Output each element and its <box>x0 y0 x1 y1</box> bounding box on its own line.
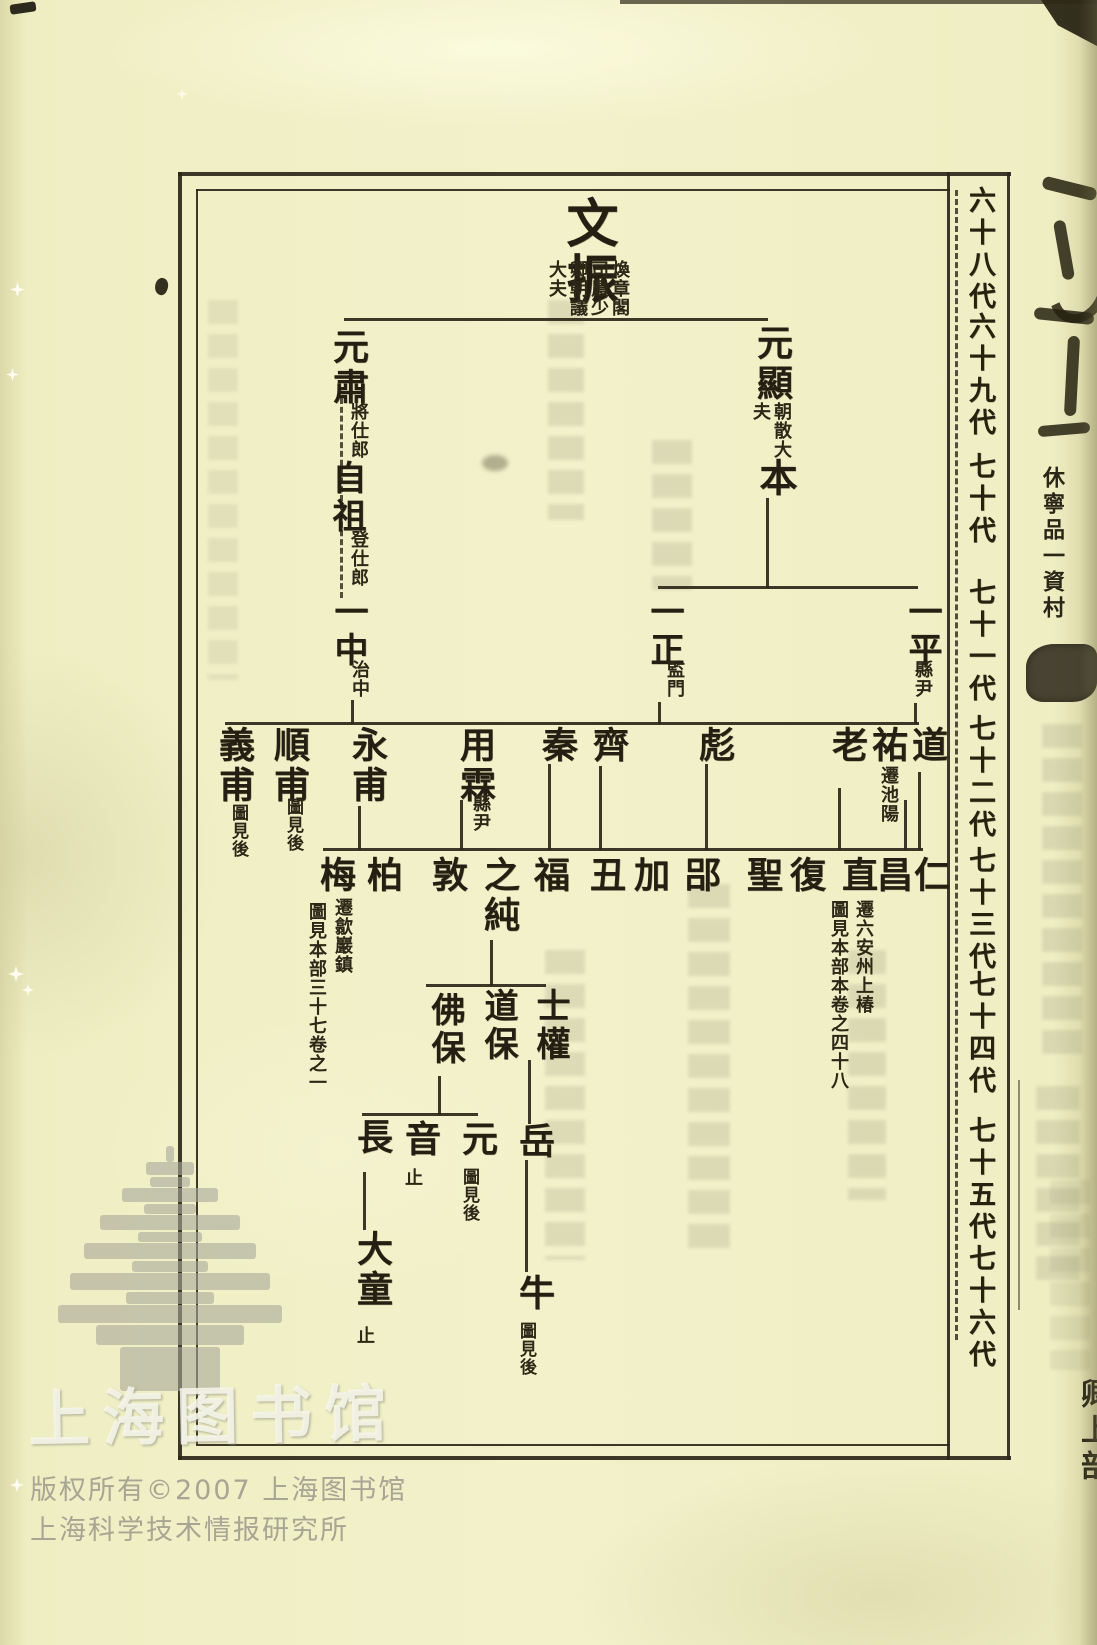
node-title-zizu: 登仕郎 <box>348 530 369 587</box>
generation-label: 七十代 <box>960 452 999 548</box>
punch-hole <box>8 966 24 982</box>
node-note-zhi: 遷六安州上椿 <box>853 900 874 1014</box>
node-name-yifu: 義甫 <box>208 726 260 806</box>
connector <box>351 700 354 724</box>
pagoda-tier <box>70 1273 270 1290</box>
node-title-yizhong: 治中 <box>349 660 370 698</box>
scanned-genealogy-page: 六十八代 六十九代 七十代 七十一代 七十二代 七十三代 七十四代 七十五代 七… <box>0 0 1097 1645</box>
node-name-yuan: 元 <box>451 1120 503 1160</box>
node-name-fu-blessing: 福 <box>523 856 575 896</box>
node-title-yonglin: 縣尹 <box>470 794 491 832</box>
bleed-through-ghost <box>548 300 584 520</box>
connector <box>438 1076 441 1115</box>
node-name-zhi: 直 <box>831 856 883 896</box>
node-name-daobao: 道保 <box>474 988 523 1064</box>
smudge <box>482 455 508 471</box>
node-name-yizheng: 一正 <box>640 594 689 670</box>
generation-label: 七十四代 <box>960 970 999 1098</box>
generation-label: 六十九代 <box>960 312 999 440</box>
node-name-ben: 本 <box>748 458 803 500</box>
connector <box>548 764 551 850</box>
node-name-mei: 梅 <box>309 856 361 896</box>
node-name-shiquan: 士權 <box>526 988 575 1064</box>
page-edge-shadow <box>1079 0 1097 1645</box>
generation-label: 七十三代 <box>960 846 999 974</box>
generation-label: 七十五代 <box>960 1116 999 1244</box>
node-note2-zhi: 圖見本部本卷之四十八 <box>828 900 849 1090</box>
pagoda-tier <box>100 1215 240 1230</box>
frame-top-inner <box>196 189 950 191</box>
punch-hole <box>22 984 34 996</box>
node-name-qi: 齊 <box>582 726 634 766</box>
node-name-datong: 大童 <box>346 1230 398 1310</box>
bleed-through-ghost <box>208 300 238 680</box>
frame-bottom-outer <box>178 1456 1011 1460</box>
connector <box>225 722 919 725</box>
connector <box>766 498 769 588</box>
generation-column-dashes <box>955 190 958 1340</box>
punch-hole <box>10 1478 24 1492</box>
node-note-yifu: 圖見後 <box>228 804 248 858</box>
frame-top-outer <box>178 172 1011 176</box>
pagoda-tier <box>126 1292 214 1304</box>
node-name-fobao: 佛保 <box>421 992 470 1068</box>
node-title-yiping: 縣尹 <box>912 660 933 698</box>
pagoda-tier <box>58 1305 282 1323</box>
connector <box>918 772 921 850</box>
library-script-watermark: 上海图书馆 <box>27 1363 399 1459</box>
connector <box>599 766 602 850</box>
bleed-through-ghost <box>1042 724 1082 1064</box>
node-name-dun: 敦 <box>421 856 473 896</box>
connector <box>363 1172 366 1230</box>
bleed-through-ghost <box>688 884 730 1254</box>
connector <box>426 984 546 987</box>
generation-label: 七十一代 <box>960 578 999 706</box>
connector <box>323 848 923 851</box>
node-note-mei: 遷歙巖鎮 <box>332 898 353 974</box>
edge-streak <box>620 0 1097 4</box>
generation-label: 七十六代 <box>960 1244 999 1372</box>
node-name-yuansu: 元肅 <box>322 328 374 408</box>
node-note-yuan: 圖見後 <box>459 1168 479 1222</box>
connector <box>344 318 768 321</box>
node-name-biao: 彪 <box>688 726 740 766</box>
connector <box>904 800 907 850</box>
node-name-niu: 牛 <box>508 1274 560 1314</box>
ink-speck <box>9 1 36 15</box>
node-note-datong: 止 <box>354 1326 375 1345</box>
connector <box>705 764 708 850</box>
pagoda-tier <box>84 1243 256 1259</box>
node-title-yizheng: 監門 <box>664 660 685 698</box>
frame-right-outer <box>1007 172 1010 1460</box>
connector <box>658 586 918 589</box>
spine-stroke <box>1064 336 1080 417</box>
margin-rule <box>1018 1080 1020 1310</box>
connector <box>838 788 841 850</box>
node-name-chou: 丑 <box>579 856 631 896</box>
node-name-yue: 岳 <box>508 1122 560 1162</box>
punch-hole <box>6 368 19 381</box>
connector <box>914 703 917 724</box>
node-note-yin: 止 <box>402 1168 423 1187</box>
pagoda-tier <box>150 1177 190 1187</box>
pagoda-tier <box>132 1261 208 1272</box>
connector <box>358 806 361 850</box>
connector <box>460 800 463 850</box>
node-title-yuansu: 將仕郎 <box>348 402 369 459</box>
node-note-shunfu: 圖見後 <box>283 798 303 852</box>
node-name-lyu: 郘 <box>674 856 726 896</box>
node-name-bai: 柏 <box>356 856 408 896</box>
node-name-yizhong: 一中 <box>324 594 373 670</box>
ink-speck <box>152 276 170 296</box>
pagoda-tier <box>146 1162 194 1175</box>
generation-label: 六十八代 <box>960 186 999 314</box>
connector <box>528 1060 531 1124</box>
node-name-yuanxian: 元顯 <box>746 324 798 404</box>
punch-hole <box>10 282 25 297</box>
institute-watermark: 上海科学技术情报研究所 <box>30 1508 349 1547</box>
node-name-sheng: 聖 <box>736 856 788 896</box>
pagoda-tier <box>122 1188 218 1202</box>
node-name-zizu: 自祖 <box>322 460 371 536</box>
node-name-yin: 音 <box>394 1120 446 1160</box>
node-note-you: 遷池陽 <box>878 766 899 823</box>
node-name-yongfu: 永甫 <box>341 726 393 806</box>
node-name-yiping: 一平 <box>898 594 947 670</box>
connector <box>362 1113 478 1116</box>
punch-hole <box>176 88 188 100</box>
copyright-watermark: 版权所有©2007 上海图书馆 <box>30 1468 407 1507</box>
pagoda-finial <box>166 1146 174 1162</box>
node-name-qin: 秦 <box>531 726 583 766</box>
node-name-shunfu: 順甫 <box>263 726 315 806</box>
node-name-zhichun: 之純 <box>473 856 525 936</box>
connector <box>658 702 661 724</box>
pagoda-tier <box>144 1204 196 1214</box>
margin-volume-title: 休寧品一資村 <box>1036 466 1068 622</box>
generation-label: 七十二代 <box>960 714 999 842</box>
connector <box>490 940 493 986</box>
pagoda-base <box>96 1325 244 1345</box>
connector <box>525 1160 528 1272</box>
bleed-through-ghost <box>652 440 692 590</box>
node-note2-mei: 圖見本部三十七卷之一 <box>306 902 327 1092</box>
generation-column-divider <box>947 172 950 1460</box>
node-name-zhang: 長 <box>346 1118 398 1158</box>
node-note-niu: 圖見後 <box>516 1322 536 1376</box>
pagoda-tier <box>138 1232 202 1242</box>
node-name-lao: 老 <box>821 726 873 766</box>
